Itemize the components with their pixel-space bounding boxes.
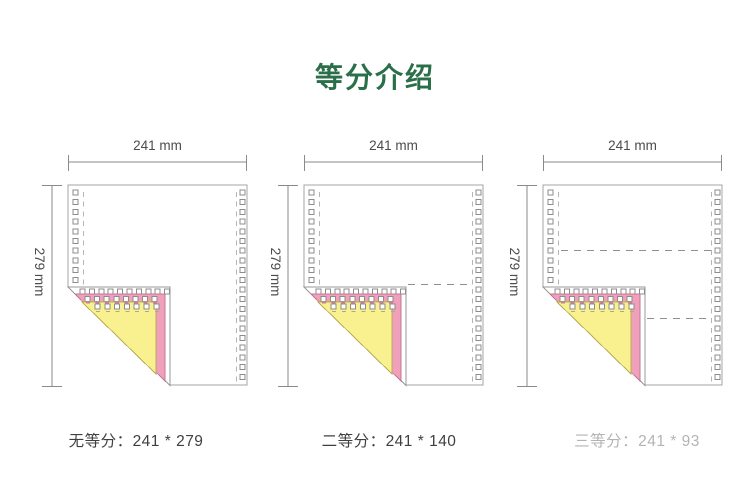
perforation-hole	[476, 248, 481, 253]
perforation-hole	[240, 345, 245, 350]
caption-two-equal-divisions: 二等分：241 * 140	[322, 429, 457, 451]
perforation-hole	[476, 316, 481, 321]
perforation-hole	[640, 289, 645, 294]
perforation-hole	[370, 304, 375, 309]
perforation-hole	[309, 219, 314, 224]
caption-no-division: 无等分：241 * 279	[69, 429, 204, 451]
perforation-hole	[309, 209, 314, 214]
perforation-hole	[359, 296, 364, 301]
perforation-hole	[618, 296, 623, 301]
width-dimension-label: 241 mm	[369, 138, 418, 153]
folded-corner	[304, 287, 406, 386]
diagram-three-equal-divisions: 241 mm279 mm	[507, 138, 722, 387]
diagram-no-division: 241 mm279 mm	[32, 138, 247, 387]
perforation-hole	[240, 277, 245, 282]
perforation-hole	[589, 296, 594, 301]
perforation-hole	[715, 326, 720, 331]
perforation-hole	[240, 336, 245, 341]
perforation-hole	[73, 200, 78, 205]
perforation-hole	[715, 277, 720, 282]
perforation-hole	[73, 219, 78, 224]
perforation-hole	[476, 297, 481, 302]
perforation-hole	[240, 268, 245, 273]
perforation-hole	[240, 316, 245, 321]
perforation-hole	[715, 258, 720, 263]
perforation-hole	[476, 277, 481, 282]
perforation-hole	[715, 316, 720, 321]
perforation-hole	[309, 268, 314, 273]
perforation-hole	[133, 296, 138, 301]
perforation-hole	[621, 289, 626, 294]
perforation-hole	[73, 277, 78, 282]
perforation-hole	[715, 268, 720, 273]
perforation-hole	[570, 304, 575, 309]
perforation-hole	[240, 374, 245, 379]
perforation-hole	[309, 190, 314, 195]
perforation-hole	[715, 248, 720, 253]
perforation-hole	[715, 219, 720, 224]
perforation-hole	[580, 304, 585, 309]
perforation-hole	[627, 296, 632, 301]
perforation-hole	[240, 248, 245, 253]
perforation-hole	[476, 365, 481, 370]
perforation-hole	[73, 268, 78, 273]
perforation-hole	[240, 306, 245, 311]
perforation-hole	[134, 304, 139, 309]
perforation-hole	[240, 326, 245, 331]
perforation-hole	[476, 219, 481, 224]
perforation-hole	[309, 277, 314, 282]
perforation-hole	[309, 248, 314, 253]
perforation-hole	[548, 200, 553, 205]
perforation-hole	[240, 209, 245, 214]
perforation-hole	[240, 365, 245, 370]
perforation-hole	[316, 289, 321, 294]
perforation-hole	[240, 200, 245, 205]
perforation-hole	[548, 219, 553, 224]
perforation-hole	[715, 345, 720, 350]
perforation-hole	[548, 258, 553, 263]
height-dimension: 279 mm	[32, 185, 62, 387]
perforation-hole	[715, 297, 720, 302]
perforation-hole	[548, 229, 553, 234]
perforation-hole	[476, 258, 481, 263]
perforation-hole	[143, 296, 148, 301]
perforation-hole	[240, 219, 245, 224]
perforation-hole	[127, 289, 132, 294]
perforation-hole	[325, 289, 330, 294]
perforation-hole	[560, 296, 565, 301]
perforation-hole	[715, 374, 720, 379]
perforation-hole	[144, 304, 149, 309]
perforation-hole	[476, 190, 481, 195]
width-dimension-label: 241 mm	[608, 138, 657, 153]
fold-layer-yellow	[557, 302, 631, 374]
perforation-hole	[476, 336, 481, 341]
perforation-hole	[104, 296, 109, 301]
perforation-hole	[114, 296, 119, 301]
height-dimension-label: 279 mm	[32, 248, 47, 297]
perforation-hole	[608, 296, 613, 301]
folded-corner	[543, 287, 645, 386]
perforation-hole	[95, 304, 100, 309]
perforation-hole	[240, 355, 245, 360]
perforation-hole	[391, 289, 396, 294]
perforation-hole	[155, 289, 160, 294]
perforation-hole	[354, 289, 359, 294]
perforation-hole	[609, 304, 614, 309]
perforation-hole	[599, 304, 604, 309]
perforation-hole	[611, 289, 616, 294]
perforation-hole	[124, 304, 129, 309]
equal-division-infographic: 等分介绍 241 mm279 mm241 mm279 mm241 mm279 m…	[0, 0, 750, 486]
perforation-hole	[331, 304, 336, 309]
caption-three-equal-divisions: 三等分：241 * 93	[574, 429, 700, 451]
perforation-hole	[583, 289, 588, 294]
perforation-hole	[715, 200, 720, 205]
perforation-hole	[240, 287, 245, 292]
height-dimension-label: 279 mm	[507, 248, 522, 297]
perforation-hole	[80, 289, 85, 294]
perforation-hole	[350, 296, 355, 301]
folded-corner	[68, 287, 170, 386]
perforation-hole	[379, 296, 384, 301]
perforation-hole	[73, 209, 78, 214]
perforation-hole	[548, 248, 553, 253]
perforation-hole	[715, 239, 720, 244]
perforation-hole	[715, 229, 720, 234]
width-dimension-label: 241 mm	[133, 138, 182, 153]
perforation-hole	[476, 374, 481, 379]
perforation-hole	[590, 304, 595, 309]
perforation-hole	[309, 229, 314, 234]
perforation-hole	[715, 287, 720, 292]
perforation-hole	[574, 289, 579, 294]
perforation-hole	[476, 326, 481, 331]
perforation-hole	[629, 304, 634, 309]
perforation-hole	[152, 296, 157, 301]
perforation-hole	[240, 190, 245, 195]
perforation-hole	[73, 258, 78, 263]
diagram-two-equal-divisions: 241 mm279 mm	[268, 138, 483, 387]
height-dimension-label: 279 mm	[268, 248, 283, 297]
perforation-hole	[593, 289, 598, 294]
perforation-hole	[165, 289, 170, 294]
perforation-hole	[95, 296, 100, 301]
perforation-hole	[564, 289, 569, 294]
perforation-hole	[85, 296, 90, 301]
perforation-hole	[351, 304, 356, 309]
perforation-hole	[115, 304, 120, 309]
perforation-hole	[372, 289, 377, 294]
perforation-hole	[715, 365, 720, 370]
perforation-hole	[390, 304, 395, 309]
perforation-hole	[240, 229, 245, 234]
perforation-hole	[99, 289, 104, 294]
perforation-hole	[146, 289, 151, 294]
perforation-hole	[401, 289, 406, 294]
perforation-hole	[602, 289, 607, 294]
perforation-hole	[715, 355, 720, 360]
width-dimension: 241 mm	[68, 138, 247, 171]
perforation-hole	[548, 209, 553, 214]
perforation-hole	[136, 289, 141, 294]
perforation-hole	[240, 258, 245, 263]
perforation-hole	[476, 345, 481, 350]
perforation-hole	[309, 258, 314, 263]
perforation-hole	[89, 289, 94, 294]
perforation-hole	[105, 304, 110, 309]
perforation-hole	[555, 289, 560, 294]
perforation-hole	[548, 239, 553, 244]
perforation-hole	[118, 289, 123, 294]
perforation-hole	[476, 229, 481, 234]
perforation-hole	[309, 200, 314, 205]
perforation-hole	[108, 289, 113, 294]
perforation-hole	[570, 296, 575, 301]
perforation-hole	[548, 190, 553, 195]
fold-layer-yellow	[318, 302, 392, 374]
perforation-hole	[548, 277, 553, 282]
perforation-hole	[476, 209, 481, 214]
perforation-hole	[476, 200, 481, 205]
height-dimension: 279 mm	[268, 185, 298, 387]
perforation-hole	[341, 304, 346, 309]
perforation-hole	[630, 289, 635, 294]
perforation-hole	[715, 209, 720, 214]
perforation-hole	[598, 296, 603, 301]
perforation-hole	[321, 296, 326, 301]
perforation-hole	[360, 304, 365, 309]
width-dimension: 241 mm	[304, 138, 483, 171]
perforation-hole	[73, 190, 78, 195]
perforation-hole	[240, 239, 245, 244]
perforation-hole	[476, 268, 481, 273]
perforation-hole	[380, 304, 385, 309]
perforation-hole	[388, 296, 393, 301]
perforation-hole	[548, 268, 553, 273]
perforation-hole	[476, 306, 481, 311]
diagrams-canvas: 241 mm279 mm241 mm279 mm241 mm279 mm	[0, 0, 750, 486]
perforation-hole	[476, 287, 481, 292]
perforation-hole	[73, 248, 78, 253]
perforation-hole	[340, 296, 345, 301]
perforation-hole	[309, 239, 314, 244]
perforation-hole	[344, 289, 349, 294]
perforation-hole	[154, 304, 159, 309]
perforation-hole	[715, 190, 720, 195]
perforation-hole	[579, 296, 584, 301]
perforation-hole	[369, 296, 374, 301]
perforation-hole	[73, 229, 78, 234]
perforation-hole	[73, 239, 78, 244]
perforation-hole	[382, 289, 387, 294]
fold-layer-yellow	[82, 302, 156, 374]
perforation-hole	[331, 296, 336, 301]
perforation-hole	[240, 297, 245, 302]
perforation-hole	[715, 306, 720, 311]
perforation-hole	[335, 289, 340, 294]
perforation-hole	[619, 304, 624, 309]
width-dimension: 241 mm	[543, 138, 722, 171]
perforation-hole	[476, 239, 481, 244]
perforation-hole	[715, 336, 720, 341]
perforation-hole	[123, 296, 128, 301]
height-dimension: 279 mm	[507, 185, 537, 387]
perforation-hole	[476, 355, 481, 360]
perforation-hole	[363, 289, 368, 294]
